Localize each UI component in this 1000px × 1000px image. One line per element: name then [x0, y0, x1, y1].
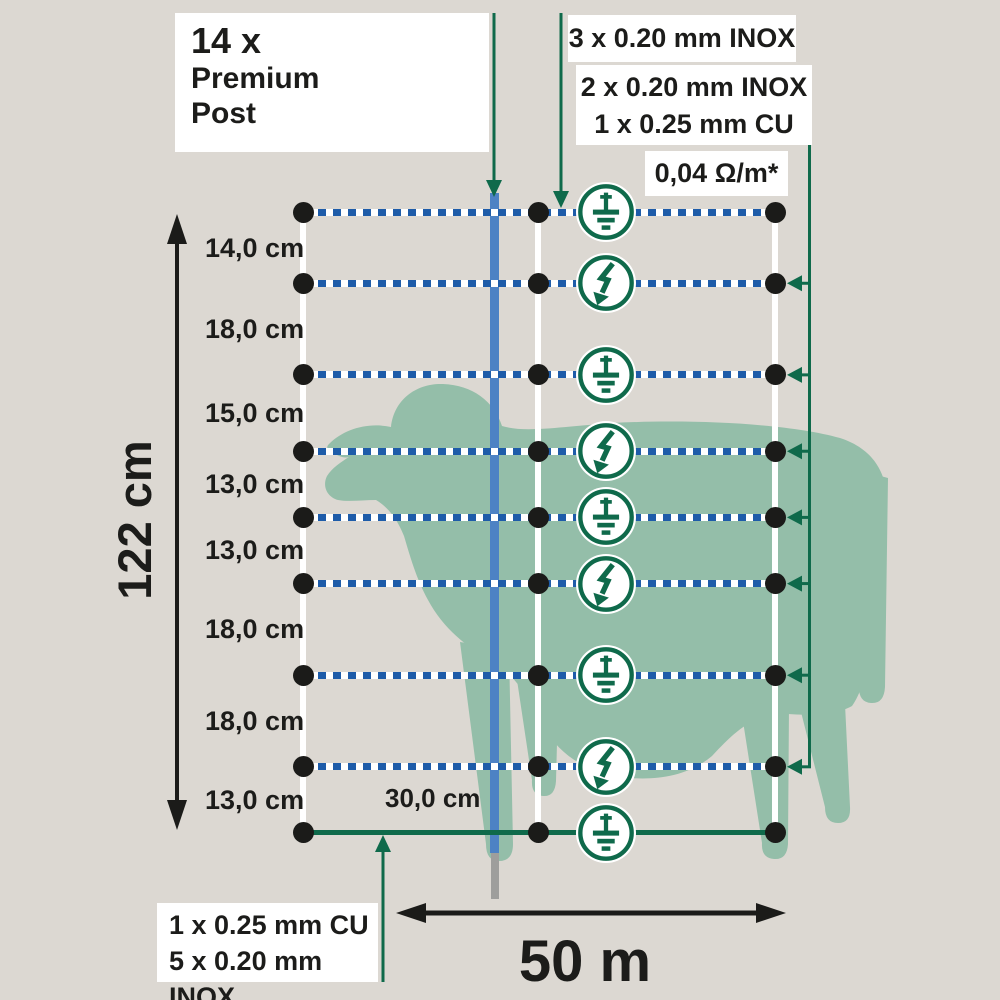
- wire-spacing-label: 18,0 cm: [205, 705, 304, 737]
- post-name-line2: Post: [191, 96, 489, 131]
- wire-spacing-label: 13,0 cm: [205, 534, 304, 566]
- earth-icon: [575, 344, 637, 406]
- live-wire-branch-arrowhead-icon: [787, 367, 802, 383]
- lightning-icon: [575, 553, 637, 615]
- net-knot: [293, 364, 314, 385]
- net-knot: [528, 573, 549, 594]
- net-knot: [765, 665, 786, 686]
- post-count: 14 x: [191, 21, 489, 61]
- net-knot: [765, 441, 786, 462]
- net-height-label: 122 cm: [107, 420, 155, 620]
- live-wire-spec-box: 2 x 0.20 mm INOX 1 x 0.25 mm CU: [576, 65, 812, 145]
- net-knot: [765, 364, 786, 385]
- top-wire-spec-box: 3 x 0.20 mm INOX: [568, 15, 796, 62]
- earth-icon: [575, 486, 637, 548]
- live-wire-branch-arrowhead-icon: [787, 759, 802, 775]
- live-wire-branch-arrowhead-icon: [787, 509, 802, 525]
- net-knot: [765, 202, 786, 223]
- wire-spacing-label: 14,0 cm: [205, 232, 304, 264]
- post-count-box: 14 x Premium Post: [175, 13, 489, 152]
- net-knot: [293, 756, 314, 777]
- net-knot: [293, 202, 314, 223]
- bottom-wire-spec-line1: 1 x 0.25 mm CU: [169, 907, 378, 943]
- wire-spacing-label: 15,0 cm: [205, 397, 304, 429]
- height-measure-arrowhead-top-icon: [167, 214, 187, 244]
- bottom-wire-pointer-arrowhead-icon: [375, 835, 391, 852]
- net-knot: [765, 507, 786, 528]
- net-length-label: 50 m: [435, 928, 735, 995]
- lightning-icon: [575, 252, 637, 314]
- earth-icon: [575, 644, 637, 706]
- bottom-wire-spec-line2: 5 x 0.20 mm INOX: [169, 943, 378, 1000]
- net-knot: [293, 507, 314, 528]
- lightning-icon: [575, 736, 637, 798]
- net-knot: [528, 822, 549, 843]
- wire-spacing-label: 13,0 cm: [205, 784, 304, 816]
- fence-net-diagram: 14,0 cm18,0 cm15,0 cm13,0 cm13,0 cm18,0 …: [0, 0, 1000, 1000]
- net-knot: [765, 756, 786, 777]
- length-measure-arrowhead-left-icon: [396, 903, 426, 923]
- net-knot: [528, 507, 549, 528]
- net-knot: [528, 756, 549, 777]
- net-knot: [528, 441, 549, 462]
- net-knot: [293, 822, 314, 843]
- net-knot: [765, 273, 786, 294]
- wire-spacing-label: 18,0 cm: [205, 613, 304, 645]
- live-wire-branch-arrowhead-icon: [787, 576, 802, 592]
- live-wire-spec-line1: 2 x 0.20 mm INOX: [576, 69, 812, 106]
- strut-spacing-label: 30,0 cm: [385, 783, 480, 814]
- earth-icon: [575, 802, 637, 864]
- wire-spacing-label: 13,0 cm: [205, 468, 304, 500]
- net-knot: [293, 441, 314, 462]
- bottom-wire-spec-box: 1 x 0.25 mm CU 5 x 0.20 mm INOX: [157, 903, 378, 982]
- net-knot: [293, 273, 314, 294]
- net-knot: [765, 822, 786, 843]
- earth-icon: [575, 181, 637, 243]
- live-wire-branch-arrowhead-icon: [787, 275, 802, 291]
- post-pointer-arrowhead-icon: [486, 180, 502, 197]
- lightning-icon: [575, 420, 637, 482]
- net-knot: [765, 573, 786, 594]
- top-wire-spec: 3 x 0.20 mm INOX: [569, 23, 796, 53]
- length-measure-arrowhead-right-icon: [756, 903, 786, 923]
- height-measure-arrowhead-bottom-icon: [167, 800, 187, 830]
- resistance-value: 0,04 Ω/m*: [655, 158, 779, 188]
- top-wire-pointer-arrowhead-icon: [553, 191, 569, 208]
- net-knot: [528, 665, 549, 686]
- resistance-box: 0,04 Ω/m*: [645, 151, 788, 196]
- net-knot: [293, 665, 314, 686]
- post-name-line1: Premium: [191, 61, 489, 96]
- live-wire-spec-line2: 1 x 0.25 mm CU: [576, 106, 812, 143]
- wire-spacing-label: 18,0 cm: [205, 313, 304, 345]
- net-knot: [293, 573, 314, 594]
- live-wire-branch-arrowhead-icon: [787, 667, 802, 683]
- net-knot: [528, 202, 549, 223]
- live-wire-branch-arrowhead-icon: [787, 443, 802, 459]
- net-knot: [528, 364, 549, 385]
- net-knot: [528, 273, 549, 294]
